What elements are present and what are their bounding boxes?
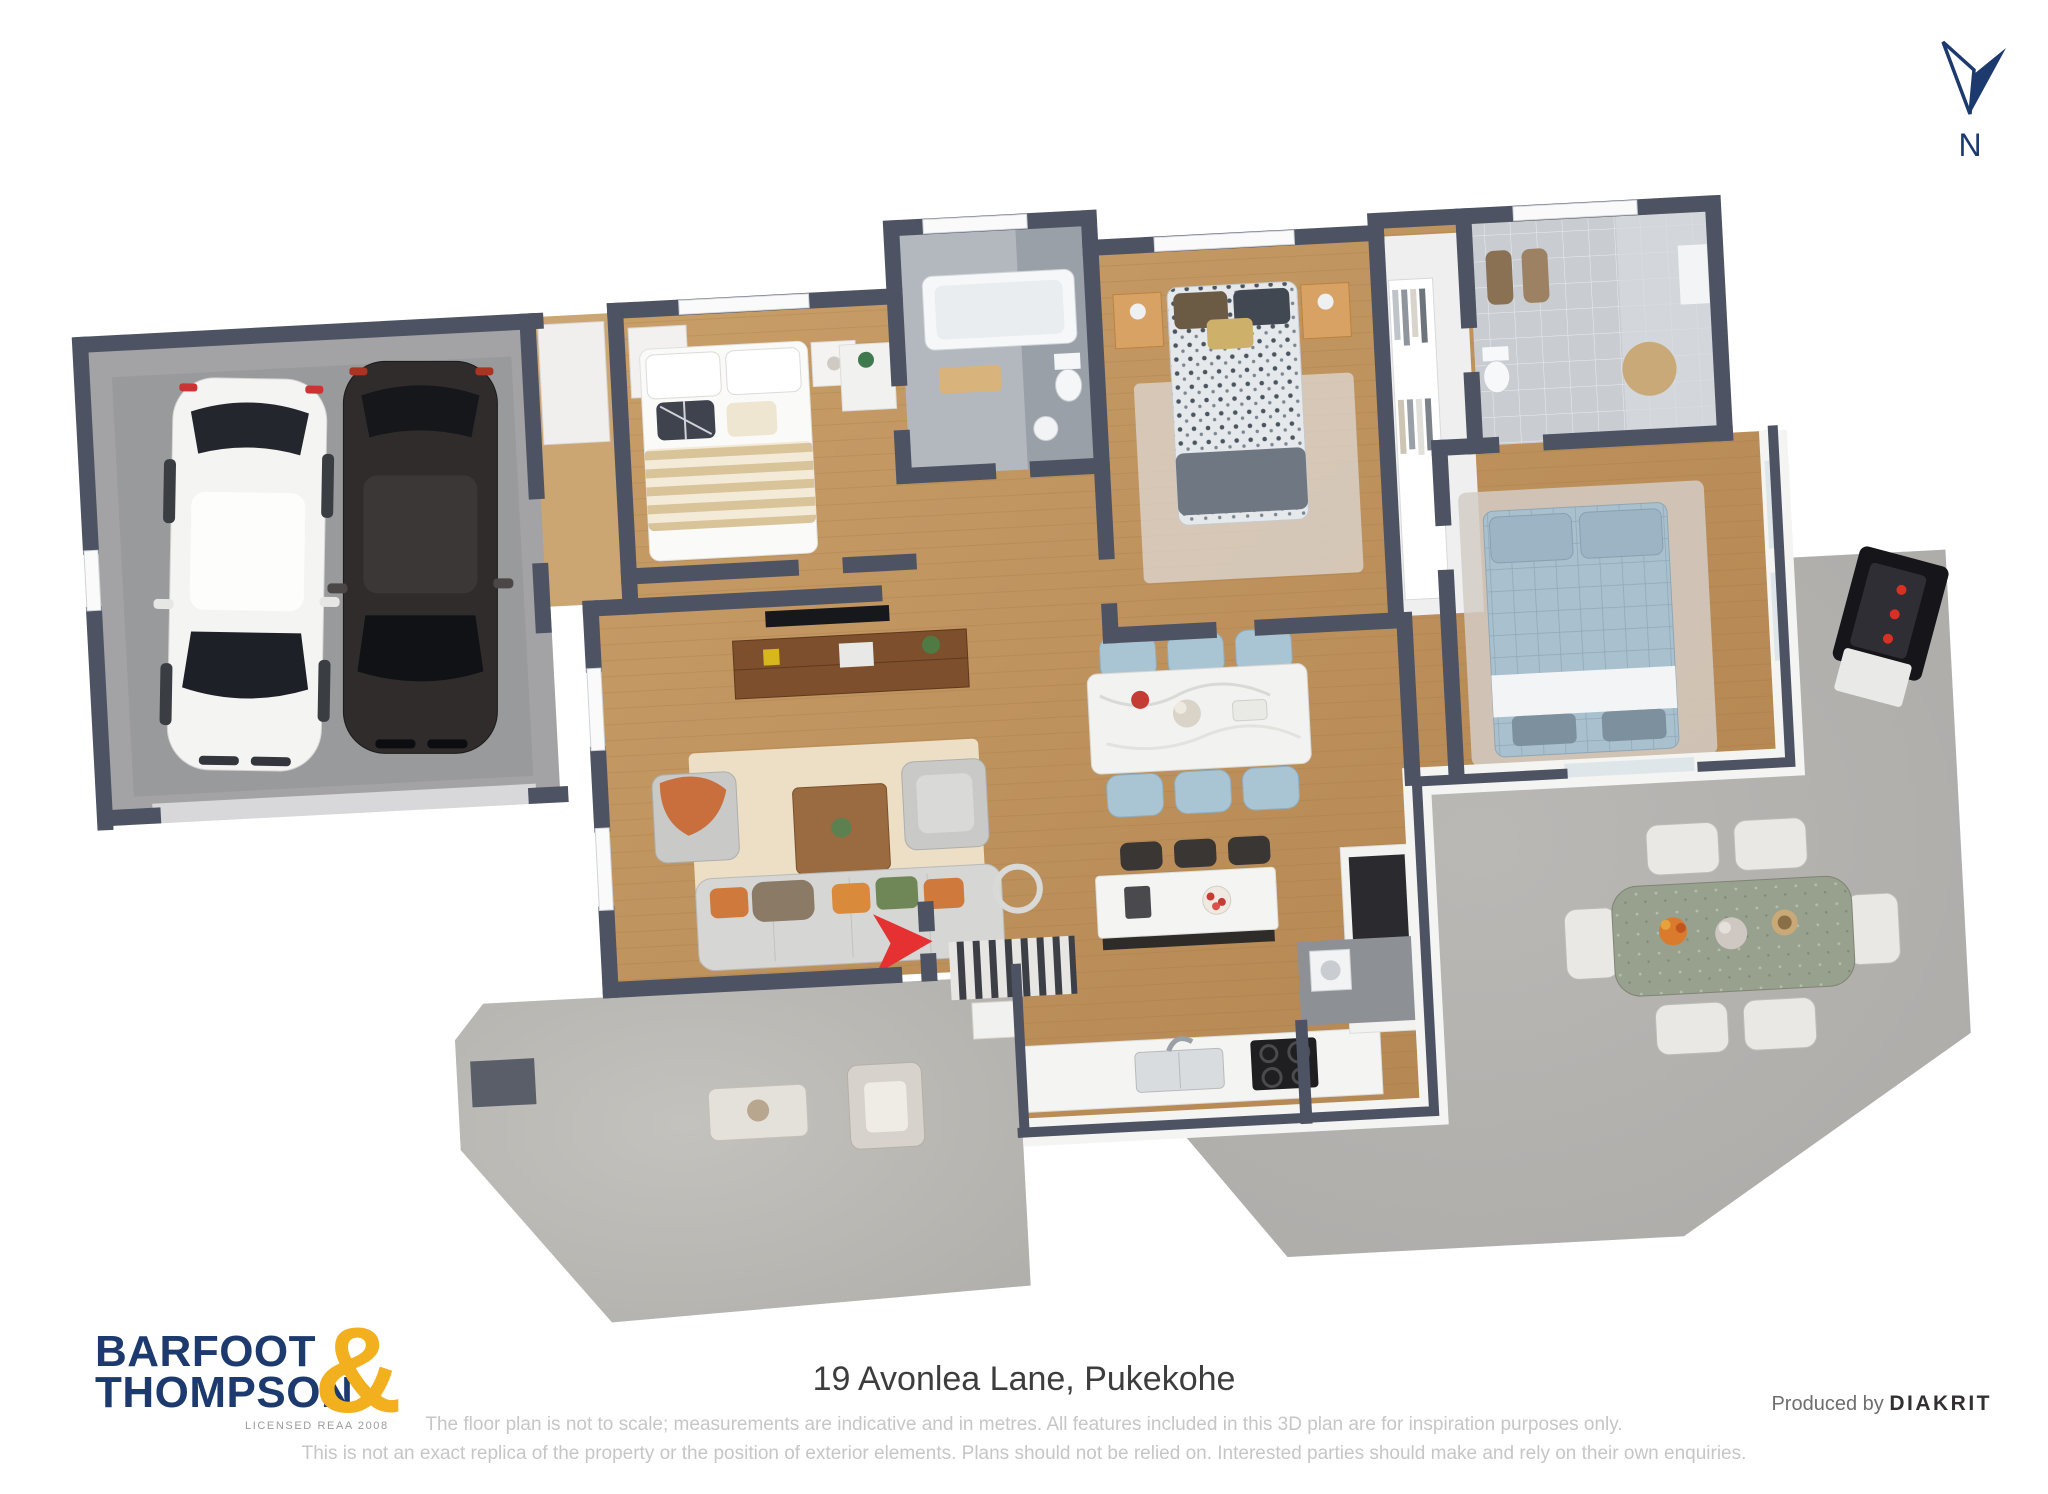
fur-throw [751,879,815,922]
plan-rotated-scene [69,167,1986,1348]
bed-1 [639,341,818,562]
toilet [1482,346,1510,393]
tv-cabinet [733,629,970,699]
disclaimer: The floor plan is not to scale; measurem… [0,1410,2048,1468]
front-porch [453,976,1031,1330]
car-white [151,377,344,772]
dining-table [1087,663,1312,774]
towel [1521,248,1550,303]
bar-stool [1174,838,1217,868]
north-arrow-right-wing [1970,48,2006,114]
wc-nook [839,342,896,411]
laundry [1297,936,1421,1026]
vanity [1677,244,1710,305]
master-bed [1483,502,1680,757]
producer-credit: Produced by DIAKRIT [1771,1392,1992,1416]
porch-step [470,1058,536,1107]
bathroom [897,224,1101,476]
credit-brand: DIAKRIT [1889,1392,1992,1415]
page: N BARFOOT THOMPSON & LICENSED REAA 2008 … [0,0,2048,1494]
bath-mat [939,365,1002,394]
bar-stool [1227,835,1270,865]
kitchen-island [1095,867,1279,950]
nightstand-left [1113,292,1164,348]
storage-cabinet [538,321,610,444]
armchair-right [901,758,989,850]
north-arrow-left-wing [1943,42,1974,114]
fridge [1349,854,1410,945]
bar-stool [1120,841,1163,871]
credit-prefix: Produced by [1771,1393,1883,1415]
bed-2 [1167,281,1309,525]
armchair-left [651,771,739,863]
garage [84,317,561,826]
towel [1485,250,1514,305]
dining-area [1085,627,1314,818]
north-label: N [1958,127,1981,163]
master-bedroom [1458,480,1718,766]
pedestal-lamp [1033,416,1058,441]
ensuite-bathroom [1468,211,1725,446]
floor-plan-image [0,0,2048,1494]
bedroom-2 [1113,278,1364,584]
nightstand-right [1301,282,1352,338]
coffee-table [792,783,890,874]
property-address: 19 Avonlea Lane, Pukekohe [0,1360,2048,1399]
disclaimer-line-1: The floor plan is not to scale; measurem… [0,1410,2048,1439]
north-indicator: N [1918,30,2028,165]
car-black [327,361,513,753]
disclaimer-line-2: This is not an exact replica of the prop… [0,1439,2048,1468]
coffee-machine [1124,886,1152,919]
toilet [1054,353,1082,402]
